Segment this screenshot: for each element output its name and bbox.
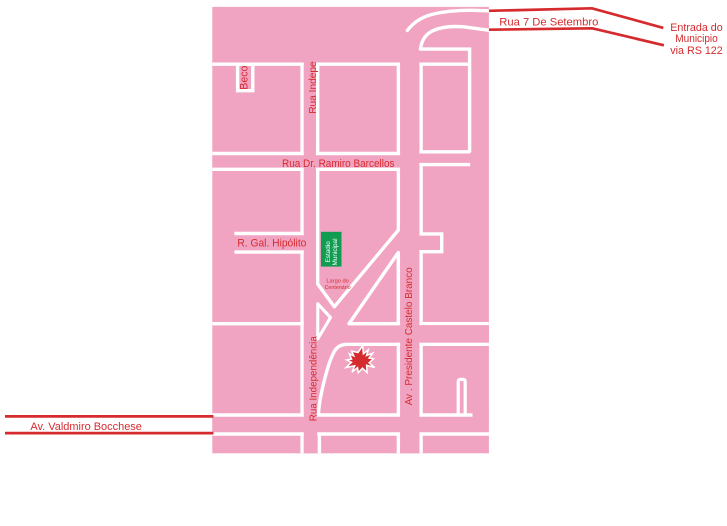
svg-text:Beco: Beco <box>239 65 251 89</box>
svg-text:Rua Indepe: Rua Indepe <box>308 61 319 114</box>
svg-text:Rua Independência: Rua Independência <box>309 336 320 421</box>
svg-text:Entrada do: Entrada do <box>670 22 723 34</box>
svg-text:via RS 122: via RS 122 <box>670 45 723 57</box>
svg-text:Av. Valdmiro Bocchese: Av. Valdmiro Bocchese <box>30 421 141 433</box>
svg-text:Centenário: Centenário <box>325 285 351 291</box>
svg-text:Municipio: Municipio <box>675 33 718 45</box>
svg-text:Largo do: Largo do <box>326 278 349 284</box>
svg-text:Municipal: Municipal <box>332 239 339 266</box>
svg-text:Av . Presidente Castelo Branco: Av . Presidente Castelo Branco <box>404 267 415 405</box>
svg-text:R. Gal. Hipólito: R. Gal. Hipólito <box>237 237 306 249</box>
svg-text:Rua Dr. Ramiro Barcellos: Rua Dr. Ramiro Barcellos <box>282 158 395 170</box>
svg-text:Rua 7 De Setembro: Rua 7 De Setembro <box>499 16 598 28</box>
